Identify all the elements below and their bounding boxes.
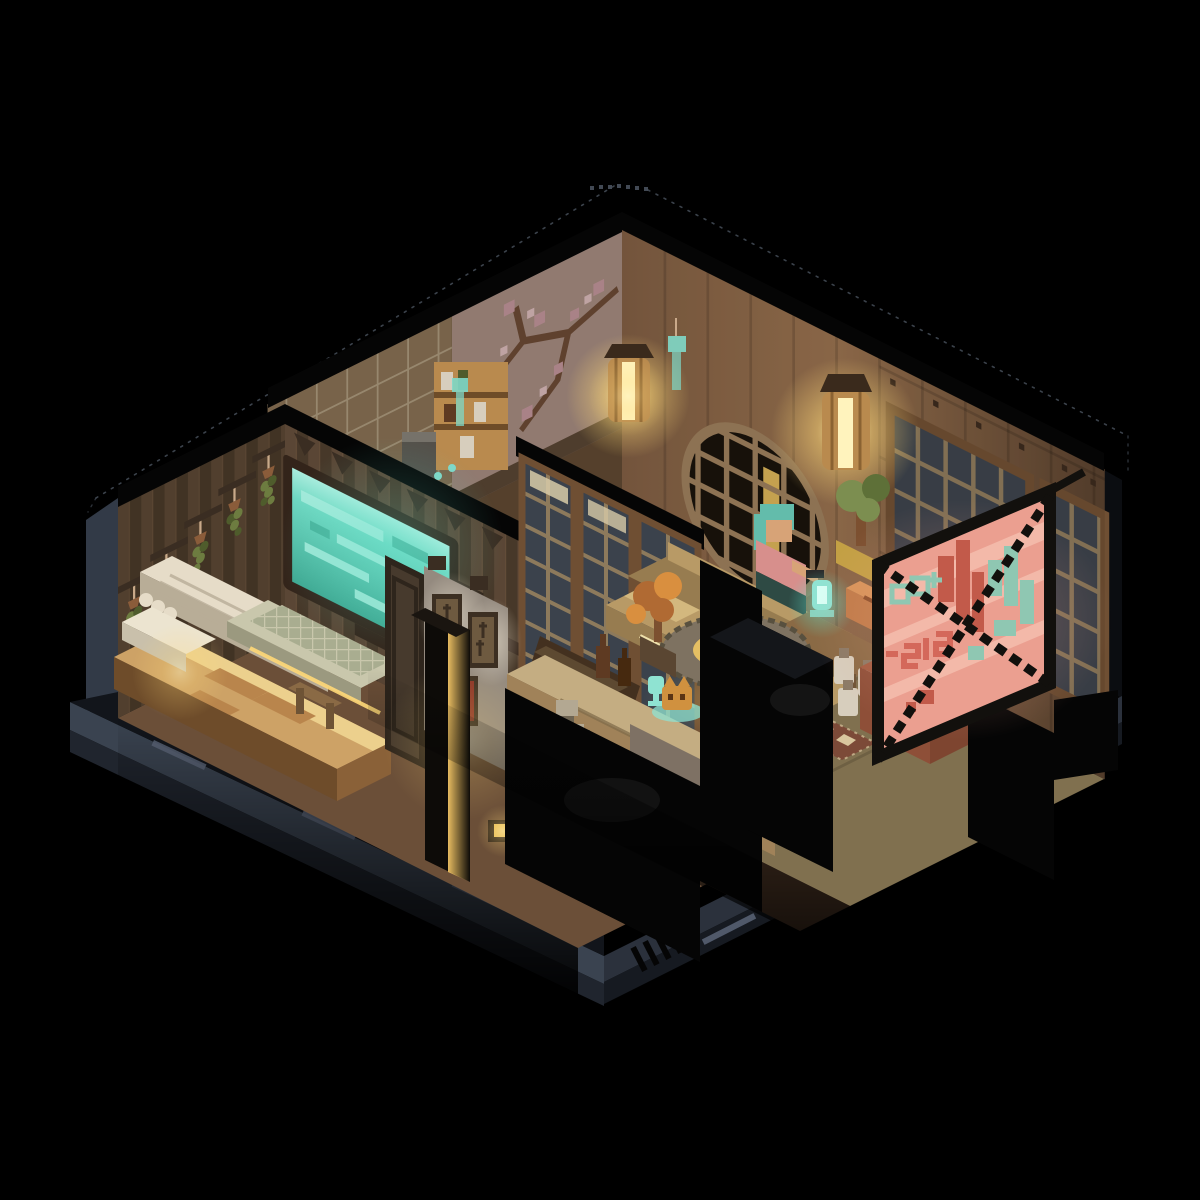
robot-head	[556, 700, 578, 716]
lantern-glow-overlay	[588, 356, 668, 436]
lantern-cap	[604, 344, 654, 358]
shelf-jar	[474, 402, 486, 422]
bedside-glow	[132, 624, 228, 720]
voxel-scene-stage	[0, 0, 1200, 1200]
framed-art-cross	[468, 612, 498, 668]
shelf-bottle	[444, 404, 456, 422]
exterior-left-face	[86, 498, 118, 714]
shelf-box	[460, 436, 474, 458]
character-head	[766, 520, 792, 542]
lantern-core	[838, 398, 853, 468]
shelf-jar	[441, 372, 453, 390]
voxel-apartment-render	[0, 0, 1200, 1200]
teal-goblet	[648, 676, 664, 706]
lantern-cap	[820, 374, 872, 392]
cat-body	[662, 686, 692, 710]
